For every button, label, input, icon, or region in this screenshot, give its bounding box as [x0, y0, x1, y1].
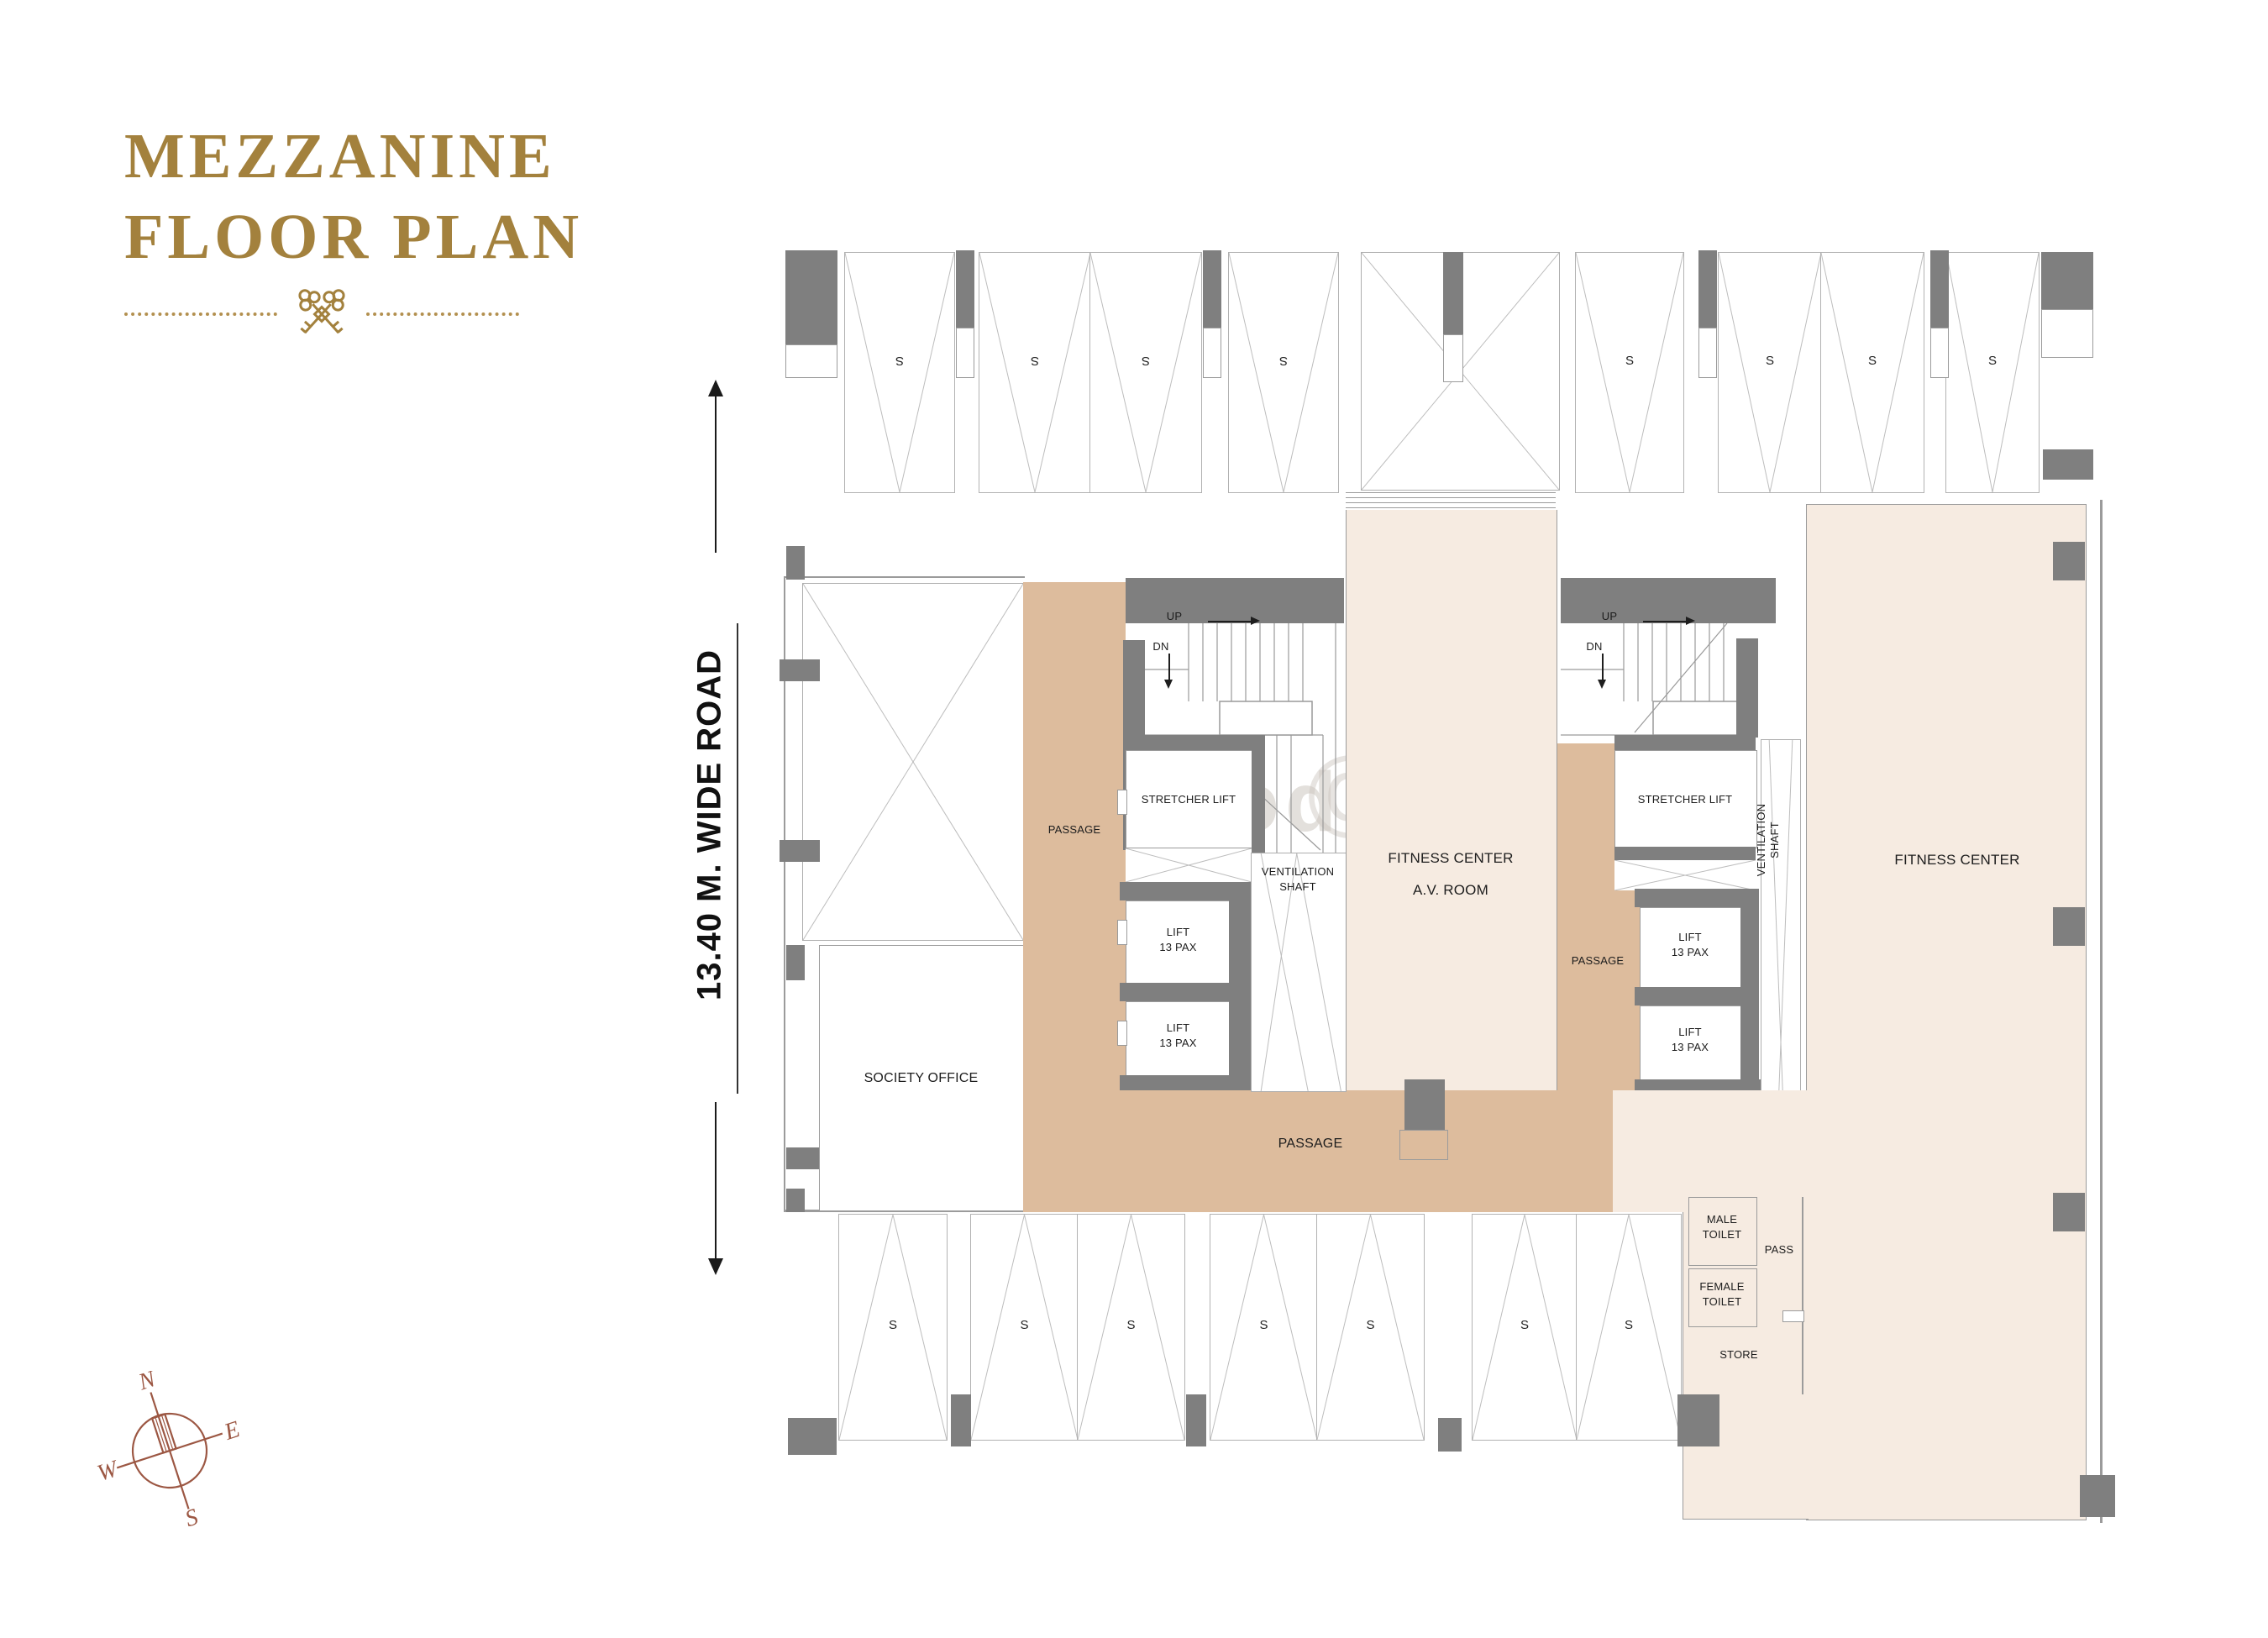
parking-stall: S — [1576, 1214, 1682, 1441]
void-cross-lines — [803, 584, 1023, 940]
stall-label: S — [1229, 354, 1338, 368]
column — [788, 1418, 837, 1455]
column — [785, 250, 837, 344]
column — [951, 1394, 971, 1446]
compass-west-label: W — [94, 1455, 123, 1487]
parking-stall: S — [838, 1214, 948, 1441]
road-arrow-line-bottom — [715, 1102, 717, 1260]
column — [2080, 1475, 2115, 1517]
column — [1677, 1394, 1719, 1446]
column-base — [1443, 334, 1463, 382]
fitness-center-label: FITNESS CENTER — [1856, 852, 2058, 869]
parking-stall: S — [1089, 252, 1202, 493]
page-title-line2: FLOOR PLAN — [124, 205, 583, 269]
dn-label: DN — [1576, 640, 1613, 654]
void-cross-lines — [1126, 848, 1252, 882]
stall-marking-lines — [1090, 253, 1201, 492]
stall-label: S — [971, 1318, 1078, 1332]
core-wall — [1736, 638, 1758, 738]
core-wall — [1120, 882, 1239, 900]
column — [2053, 907, 2085, 946]
compass-rose: N E S W — [94, 1371, 245, 1530]
wall-line — [1802, 1197, 1803, 1394]
vent-line2: SHAFT — [1768, 822, 1781, 858]
society-office-label: SOCIETY OFFICE — [819, 1070, 1023, 1086]
column — [1438, 1418, 1462, 1452]
passage-strip-left — [1023, 582, 1126, 1212]
stall-label: S — [839, 1318, 947, 1332]
lift-capacity-label: 13 PAX — [1640, 946, 1740, 959]
stall-marking-lines — [1821, 253, 1924, 492]
av-room-label1: FITNESS CENTER — [1346, 850, 1556, 867]
lift-pit-void — [1614, 860, 1756, 890]
dn-label: DN — [1142, 640, 1179, 654]
door-jamb — [1117, 920, 1127, 945]
dn-arrow-icon — [1168, 654, 1170, 680]
core-wall — [1252, 735, 1265, 853]
road-arrow-line-top — [715, 395, 717, 553]
parking-stall: S — [1316, 1214, 1425, 1441]
stall-label: S — [1078, 1318, 1184, 1332]
core-wall — [1120, 1075, 1247, 1090]
door-jamb — [1117, 1021, 1127, 1046]
av-room-label2: A.V. ROOM — [1346, 882, 1556, 899]
pass-label: PASS — [1754, 1243, 1804, 1257]
passage-label-main: PASSAGE — [1243, 1136, 1378, 1152]
core-wall — [1126, 735, 1252, 750]
column — [1404, 1079, 1445, 1130]
column-base — [1399, 1130, 1448, 1160]
outer-wall-line — [2100, 500, 2103, 1523]
male-toilet-label1: MALE — [1688, 1213, 1756, 1226]
threshold-line — [1346, 507, 1556, 508]
mezzanine-floor-plan-page: MEZZANINE FLOOR PLAN 13.40 M. WIDE ROAD — [0, 0, 2268, 1638]
stall-label: S — [1719, 354, 1821, 368]
lift-label: LIFT — [1126, 926, 1231, 939]
core-wall — [1614, 735, 1756, 750]
ventilation-shaft-label: VENTILATION — [1251, 865, 1345, 879]
parking-stall: S — [970, 1214, 1079, 1441]
column-base — [2041, 309, 2093, 358]
stall-label: S — [1210, 1318, 1317, 1332]
passage-label-right: PASSAGE — [1556, 954, 1640, 968]
stall-marking-lines — [1229, 253, 1338, 492]
female-toilet-label2: TOILET — [1688, 1295, 1756, 1309]
column-base — [1698, 328, 1717, 378]
dn-arrow-icon — [1602, 654, 1604, 680]
parking-stall: S — [979, 252, 1091, 493]
column — [780, 840, 820, 862]
stall-label: S — [1317, 1318, 1424, 1332]
column — [786, 1189, 805, 1212]
parking-stall: S — [1945, 252, 2040, 493]
parking-stall: S — [1472, 1214, 1578, 1441]
wall-line — [784, 576, 1025, 578]
parking-stall: S — [844, 252, 955, 493]
parking-stall: S — [1210, 1214, 1318, 1441]
lift-pit-void — [1126, 848, 1252, 882]
column — [2053, 1193, 2085, 1231]
stall-label: S — [979, 354, 1090, 368]
stall-marking-lines — [979, 253, 1090, 492]
column — [1443, 252, 1463, 334]
ventilation-shaft-label-vertical: VENTILATION SHAFT — [1755, 777, 1805, 903]
compass-south-label: S — [182, 1504, 202, 1530]
lift-label: LIFT — [1640, 1026, 1740, 1039]
stall-label: S — [1577, 1318, 1681, 1332]
road-width-label: 13.40 M. WIDE ROAD — [691, 649, 729, 1000]
stall-label: S — [845, 354, 954, 368]
up-arrow-icon — [1208, 621, 1252, 622]
core-wall — [1740, 889, 1759, 1095]
door-jamb — [1117, 790, 1127, 815]
av-room — [1346, 510, 1557, 1090]
column-base — [956, 328, 974, 378]
male-toilet-label2: TOILET — [1688, 1228, 1756, 1242]
lift-label: LIFT — [1640, 931, 1740, 944]
title-divider-right — [366, 312, 519, 316]
stall-marking-lines — [845, 253, 954, 492]
store-label: STORE — [1688, 1348, 1789, 1362]
road-label-rule — [737, 623, 738, 1094]
column-base — [1203, 328, 1221, 378]
female-toilet-label1: FEMALE — [1688, 1280, 1756, 1294]
stall-label: S — [1090, 354, 1201, 368]
crossed-keys-icon — [286, 276, 358, 353]
parking-stall: S — [1077, 1214, 1185, 1441]
column — [2053, 542, 2085, 580]
column — [956, 250, 974, 328]
passage-label-left: PASSAGE — [1023, 823, 1126, 837]
wall-notch — [1782, 1310, 1804, 1322]
stretcher-lift-label: STRETCHER LIFT — [1126, 793, 1252, 806]
stretcher-lift-label: STRETCHER LIFT — [1614, 793, 1756, 806]
column — [1203, 250, 1221, 328]
up-arrow-icon — [1643, 621, 1687, 622]
lift-capacity-label: 13 PAX — [1126, 1037, 1231, 1050]
core-wall — [1229, 882, 1251, 1090]
column-base — [785, 344, 837, 378]
core-wall — [1120, 983, 1239, 1001]
page-title-line1: MEZZANINE — [124, 124, 556, 188]
up-label: UP — [1156, 610, 1193, 623]
vent-line1: VENTILATION — [1755, 804, 1767, 876]
column — [1698, 250, 1717, 328]
parking-stall: S — [1228, 252, 1339, 493]
parking-stall: S — [1575, 252, 1684, 493]
column — [2043, 449, 2093, 480]
column-base — [1930, 328, 1949, 378]
lobby-cream-zone — [1613, 1090, 1808, 1212]
threshold-line — [1346, 492, 1556, 493]
stall-label: S — [1576, 354, 1683, 368]
threshold-line — [1346, 497, 1556, 498]
compass-east-label: E — [220, 1416, 243, 1446]
column — [786, 546, 805, 580]
stall-marking-lines — [1946, 253, 2039, 492]
void-cross-lines — [1614, 860, 1756, 890]
stall-marking-lines — [1719, 253, 1821, 492]
road-arrow-down-icon — [708, 1258, 723, 1275]
threshold-line — [1346, 502, 1556, 503]
ventilation-shaft-label2: SHAFT — [1251, 880, 1345, 894]
stall-label: S — [1473, 1318, 1577, 1332]
parking-stall: S — [1820, 252, 1924, 493]
double-height-void — [802, 583, 1024, 941]
stall-marking-lines — [1576, 253, 1683, 492]
stall-label: S — [1821, 354, 1924, 368]
road-arrow-up-icon — [708, 380, 723, 396]
up-label: UP — [1591, 610, 1628, 623]
title-divider-left — [124, 312, 277, 316]
lift-label: LIFT — [1126, 1021, 1231, 1035]
column — [1186, 1394, 1206, 1446]
column — [780, 659, 820, 681]
lift-capacity-label: 13 PAX — [1126, 941, 1231, 954]
core-wall — [1614, 847, 1756, 860]
column — [1930, 250, 1949, 328]
parking-stall: S — [1718, 252, 1822, 493]
compass-north-label: N — [134, 1371, 160, 1396]
fitness-center-room — [1806, 504, 2087, 1520]
lift-capacity-label: 13 PAX — [1640, 1041, 1740, 1054]
column — [2041, 252, 2093, 309]
column — [786, 945, 805, 980]
stall-label: S — [1946, 354, 2039, 368]
